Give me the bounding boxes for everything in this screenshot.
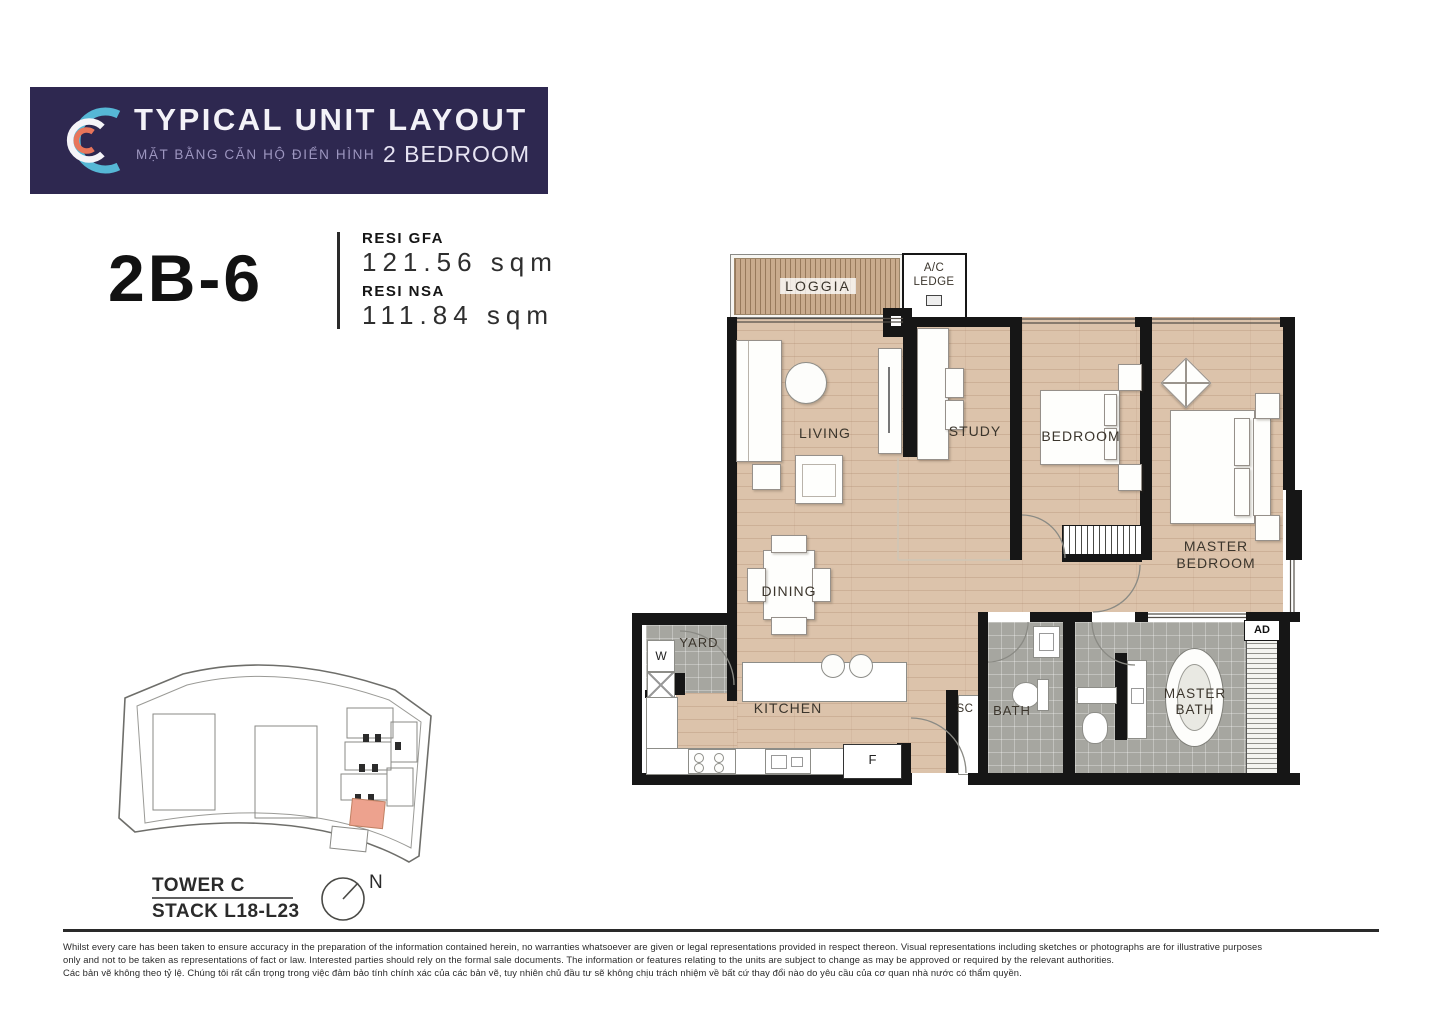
- burner-icon: [694, 753, 704, 763]
- kitchen-label: KITCHEN: [744, 700, 832, 717]
- tower-label: TOWER C: [152, 875, 245, 896]
- burner-icon: [694, 763, 704, 773]
- highlighted-unit: [350, 798, 386, 828]
- master-nightstand-1: [1255, 393, 1280, 419]
- island-sink-1: [821, 654, 845, 678]
- wall-bath-masterbath: [1063, 612, 1075, 773]
- mbath-vanity-column: [1127, 660, 1147, 739]
- tv-console: [878, 348, 902, 454]
- ad-label-box: AD: [1244, 620, 1280, 641]
- stove: [688, 749, 736, 774]
- cell-mark: [363, 734, 369, 742]
- floor-plan-sheet: TYPICAL UNIT LAYOUT MẶT BẰNG CĂN HỘ ĐIỂN…: [0, 0, 1440, 1018]
- header-banner: TYPICAL UNIT LAYOUT MẶT BẰNG CĂN HỘ ĐIỂN…: [30, 87, 548, 194]
- washer-label: W: [655, 649, 666, 663]
- master-bath-label: MASTER BATH: [1148, 686, 1242, 718]
- kitchen-sink: [765, 749, 811, 774]
- sofa: [736, 340, 782, 462]
- fridge-box: F: [843, 744, 902, 779]
- master-side-window: [1291, 560, 1295, 612]
- yard-label: YARD: [670, 635, 728, 651]
- north-label: N: [369, 872, 383, 893]
- disclaimer-line-2: only and not to be taken as representati…: [63, 954, 1114, 965]
- loggia-label-text: LOGGIA: [780, 278, 856, 294]
- cell-mark: [359, 764, 365, 772]
- wall-bedroom-master: [1140, 317, 1152, 560]
- disclaimer-line-1: Whilst every care has been taken to ensu…: [63, 941, 1262, 952]
- master-headboard: [1253, 418, 1271, 516]
- burner-icon: [714, 763, 724, 773]
- living-label: LIVING: [788, 425, 862, 442]
- cell-mark: [395, 742, 401, 750]
- wall-top-study: [912, 317, 1022, 327]
- cell-mark: [372, 764, 378, 772]
- dining-chair-bottom: [771, 617, 807, 635]
- building-outline: [119, 665, 431, 862]
- bedroom-nightstand-2: [1118, 464, 1142, 491]
- key-plan: TOWER C STACK L18-L23 N: [95, 652, 465, 942]
- mbath-sink-icon: [1131, 688, 1144, 704]
- mbath-counter: [1077, 687, 1117, 704]
- ad-duct: [1246, 622, 1279, 775]
- burner-icon: [714, 753, 724, 763]
- nsa-label: RESI NSA: [362, 283, 558, 300]
- wall-right-step: [1286, 490, 1302, 560]
- island-sink-2: [849, 654, 873, 678]
- corner-block-window: [891, 316, 901, 326]
- bath-vanity: [1033, 626, 1060, 658]
- adjacent-unit: [330, 826, 368, 852]
- ac-ledge-label: A/C LEDGE: [904, 262, 964, 290]
- study-label: STUDY: [938, 423, 1012, 440]
- sheet-subtitle-vietnamese: MẶT BẰNG CĂN HỘ ĐIỂN HÌNH: [136, 147, 375, 162]
- ac-unit-icon: [926, 295, 942, 306]
- divider-line: [337, 232, 340, 329]
- footer-rule: [63, 929, 1379, 932]
- master-pillow-2: [1234, 468, 1250, 516]
- bath-sink-icon: [1039, 633, 1054, 651]
- unit-code: 2B-6: [108, 240, 263, 316]
- cell-mark: [375, 734, 381, 742]
- mbath-toilet: [1082, 712, 1108, 744]
- bedroom-pillow-1: [1104, 394, 1117, 426]
- floor-plan: LOGGIA A/C LEDGE: [630, 248, 1305, 788]
- master-bath-window: [1148, 614, 1246, 618]
- wall-yard-top: [632, 613, 737, 625]
- bedroom-type-tag: 2 BEDROOM: [383, 141, 530, 168]
- wall-bath-left: [978, 612, 988, 773]
- dining-label: DINING: [754, 583, 824, 600]
- wall-living-study: [903, 317, 917, 457]
- brand-logo-icon: [46, 95, 132, 187]
- loggia-label: LOGGIA: [735, 278, 901, 295]
- bath-label: BATH: [982, 703, 1042, 719]
- sheet-title: TYPICAL UNIT LAYOUT: [134, 102, 528, 138]
- armchair: [795, 455, 843, 504]
- dryer-box-icon: [647, 672, 675, 698]
- wall-left-outer: [632, 613, 642, 785]
- wall-right-upper: [1283, 317, 1295, 490]
- wardrobe: [1062, 525, 1142, 555]
- study-chair-1: [945, 368, 964, 398]
- coffee-table: [785, 362, 827, 404]
- stack-label: STACK L18-L23: [152, 901, 300, 922]
- master-pillow-1: [1234, 418, 1250, 466]
- tv-icon: [888, 367, 890, 433]
- ad-label: AD: [1254, 624, 1270, 636]
- sink-bowl-icon: [771, 755, 787, 769]
- master-bedroom-label: MASTER BEDROOM: [1164, 538, 1268, 572]
- fridge-label: F: [869, 752, 877, 767]
- wall-bath-top-1: [1030, 612, 1092, 622]
- bedroom-label: BEDROOM: [1036, 428, 1126, 445]
- bedroom-nightstand-1: [1118, 364, 1142, 391]
- dining-chair-top: [771, 535, 807, 553]
- side-table: [752, 464, 781, 490]
- wall-bottom-right: [968, 773, 1300, 785]
- sofa-seam: [748, 341, 749, 461]
- gfa-label: RESI GFA: [362, 230, 558, 247]
- sink-bowl-icon: [791, 757, 803, 767]
- nsa-value: 111.84 sqm: [362, 301, 558, 331]
- sc-label: SC: [948, 703, 982, 717]
- armchair-seat: [802, 464, 836, 497]
- gfa-value: 121.56 sqm: [362, 248, 558, 278]
- area-info: RESI GFA 121.56 sqm RESI NSA 111.84 sqm: [362, 230, 558, 336]
- wall-bath-top-2: [1135, 612, 1148, 622]
- disclaimer-line-3: Các bản vẽ không theo tỷ lệ. Chúng tôi r…: [63, 967, 1022, 978]
- compass-needle: [343, 883, 358, 899]
